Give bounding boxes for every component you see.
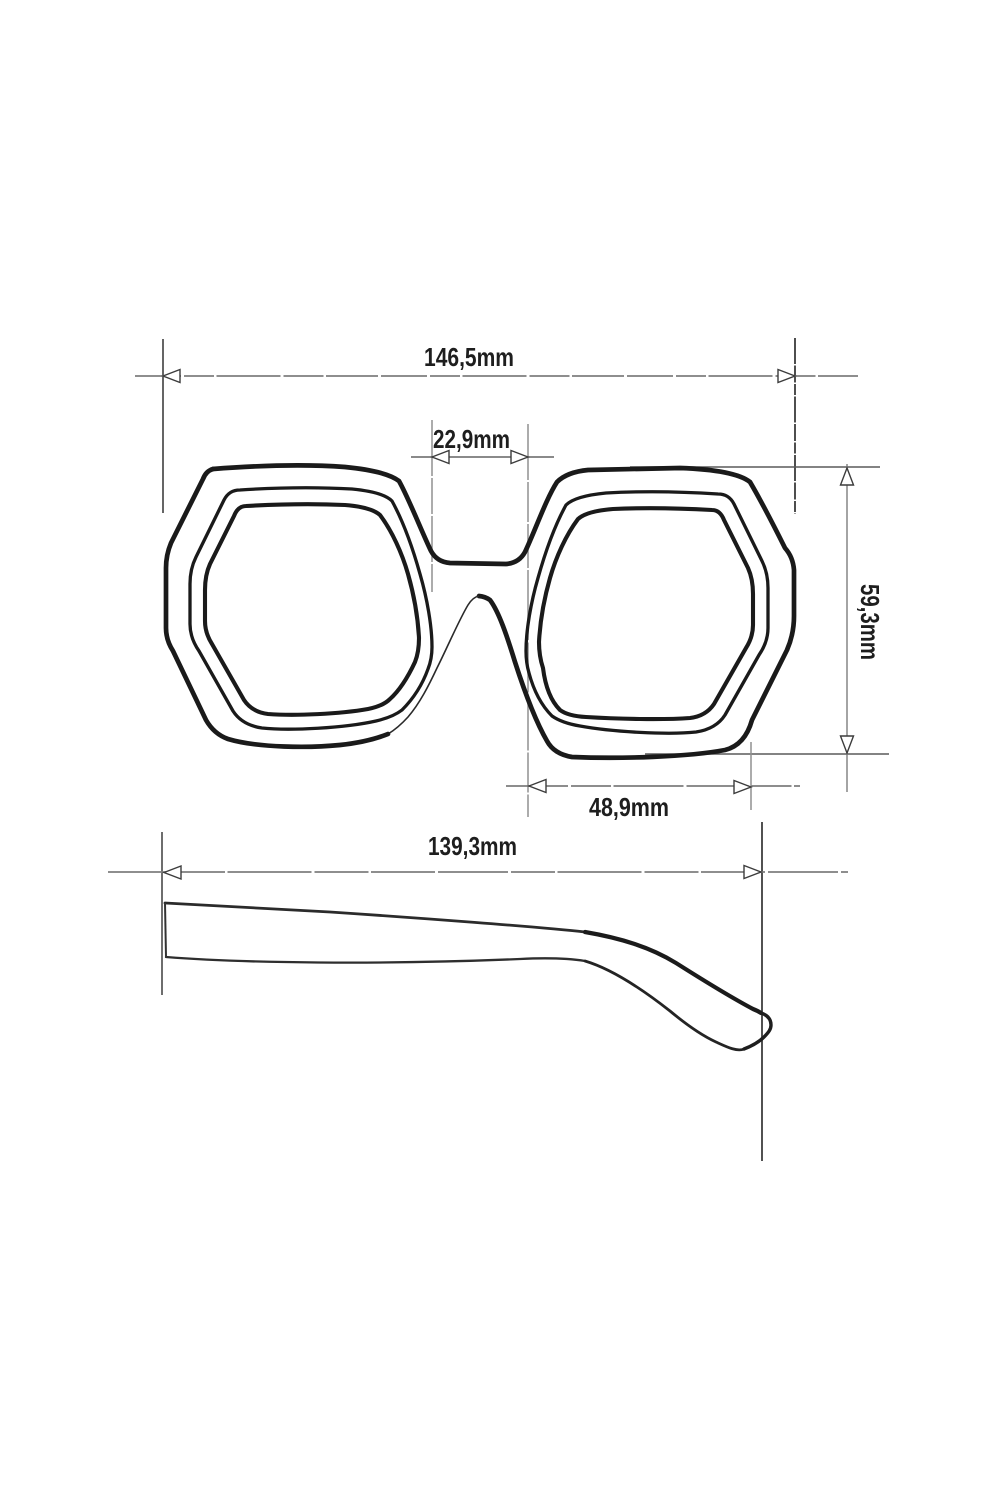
- svg-text:48,9mm: 48,9mm: [589, 792, 669, 822]
- svg-text:139,3mm: 139,3mm: [428, 831, 517, 861]
- svg-text:146,5mm: 146,5mm: [424, 342, 514, 372]
- svg-text:22,9mm: 22,9mm: [433, 424, 510, 454]
- svg-text:59,3mm: 59,3mm: [855, 584, 885, 660]
